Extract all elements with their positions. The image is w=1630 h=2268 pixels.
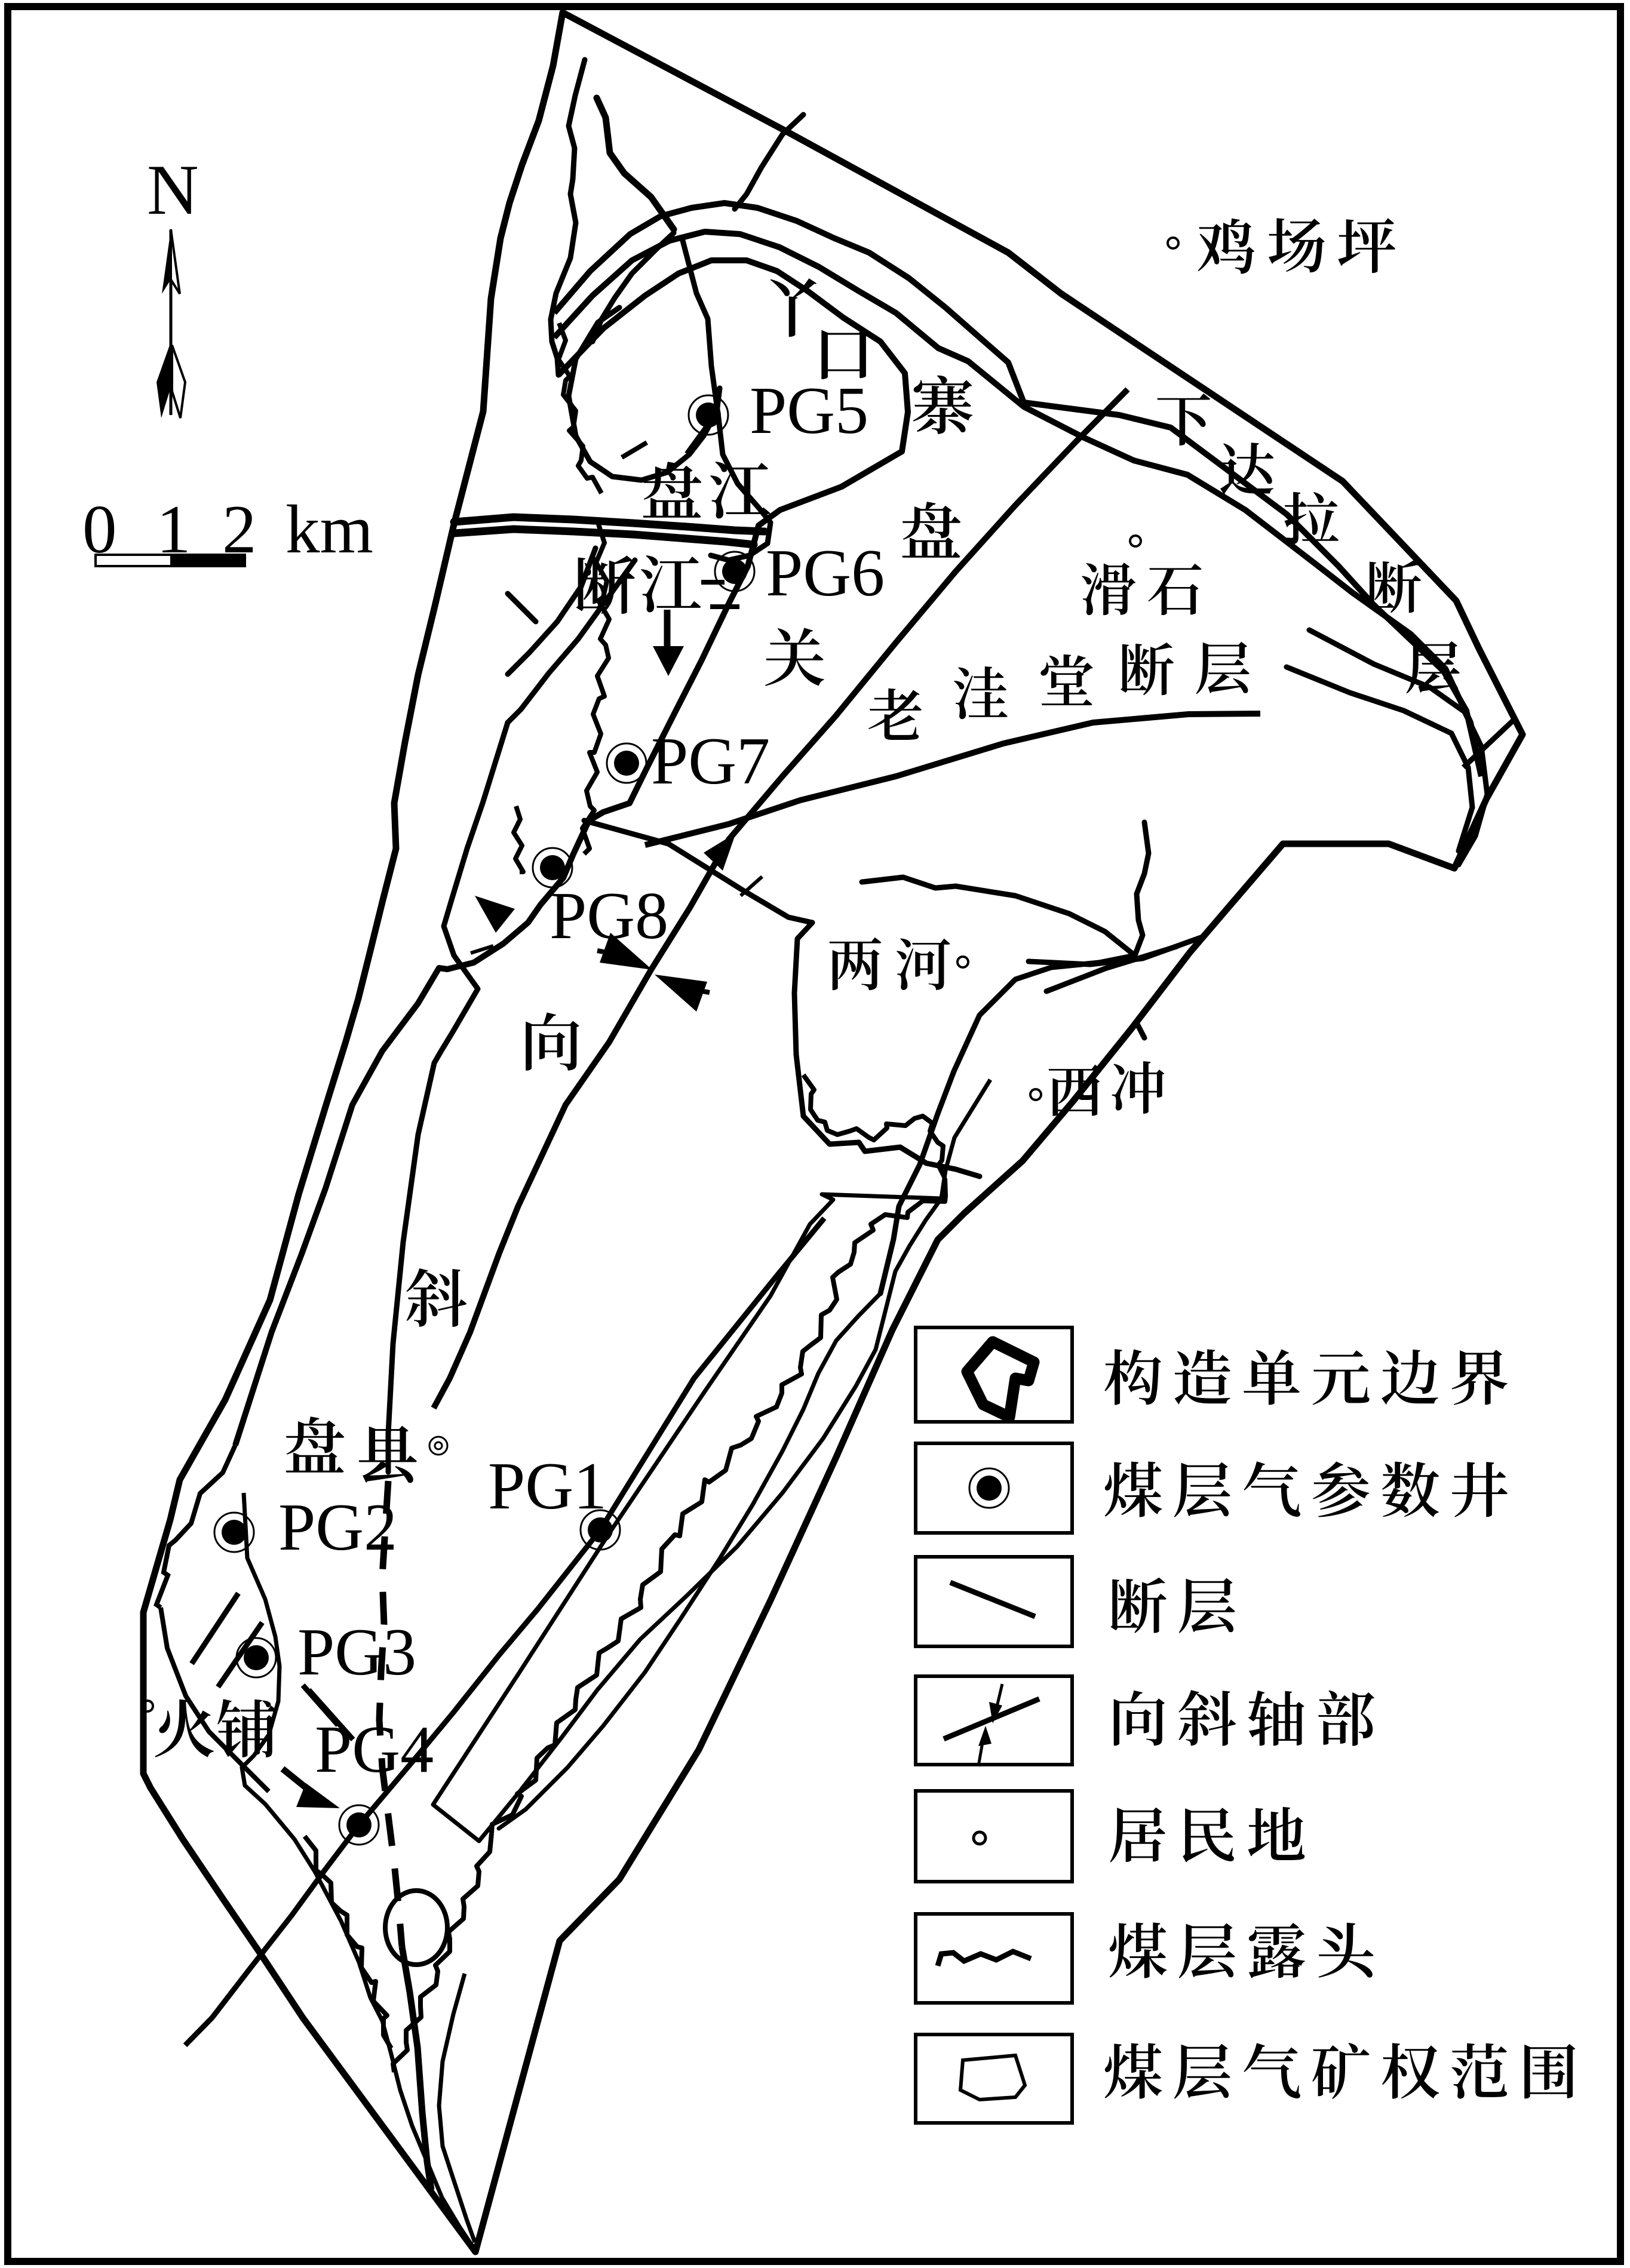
svg-text:1: 1 — [156, 491, 191, 567]
svg-text:PG8: PG8 — [550, 879, 668, 953]
svg-text:PG5: PG5 — [750, 374, 868, 448]
svg-text:2: 2 — [222, 491, 257, 567]
svg-text:PG1: PG1 — [488, 1449, 607, 1523]
svg-text:PG3: PG3 — [297, 1615, 416, 1689]
svg-text:km: km — [286, 491, 373, 567]
svg-text:PG2: PG2 — [278, 1491, 397, 1565]
svg-text:PG7: PG7 — [651, 724, 770, 798]
svg-text:0: 0 — [82, 491, 117, 567]
svg-text:PG6: PG6 — [766, 536, 885, 610]
svg-text:PG4: PG4 — [315, 1713, 434, 1787]
svg-text:N: N — [147, 150, 199, 229]
